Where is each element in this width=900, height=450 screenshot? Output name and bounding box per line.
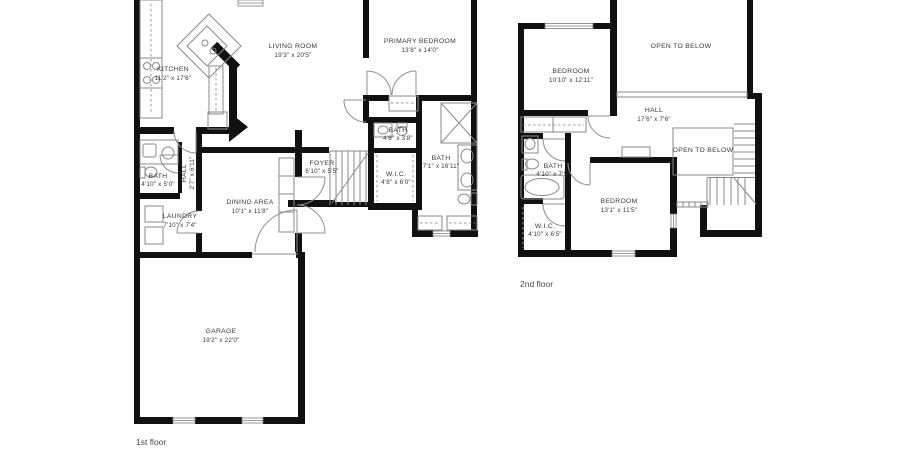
small-bath-label: BATH [389, 127, 408, 134]
garage-label: GARAGE [206, 328, 237, 335]
dining-area-dims: 10'1" x 11'8" [232, 208, 269, 215]
primary-bath-label: BATH [432, 155, 451, 162]
hall-dims: 2'7" x 6'11" [189, 157, 196, 190]
stairwell [673, 124, 756, 207]
refrigerator [208, 112, 227, 129]
hall-bath-label: BATH [149, 173, 168, 180]
wic-dims: 4'8" x 6'0" [381, 179, 411, 186]
hall2-dims: 17'6" x 7'6" [637, 116, 670, 123]
primary-bedroom-label: PRIMARY BEDROOM [384, 38, 456, 45]
hall-bath-dims: 4'10" x 5'0" [141, 181, 174, 188]
wic2-dims: 4'10" x 6'5" [528, 231, 561, 238]
second-floor-caption: 2nd floor [520, 279, 553, 289]
toilet [458, 194, 470, 204]
laundry-dims: 7'10" x 7'4" [163, 222, 196, 229]
staircase [330, 151, 368, 205]
open-to-below-stair-label: OPEN TO BELOW [673, 147, 734, 154]
sink [525, 139, 535, 150]
porch-steps [279, 158, 294, 232]
primary-bedroom-dims: 13'8" x 14'0" [401, 47, 438, 54]
bedroom2-label: BEDROOM [552, 68, 589, 75]
foyer-label: FOYER [310, 160, 335, 167]
wic-label: W.I.C. [386, 171, 406, 178]
bath2-label: BATH [544, 163, 563, 170]
floor-plan-canvas: KITCHEN 11'2" x 17'6" LIVING ROOM 19'3" … [0, 0, 900, 450]
living-room-label: LIVING ROOM [269, 43, 318, 50]
bedroom2-dims: 10'10" x 12'11" [549, 77, 593, 84]
dryer [145, 227, 163, 244]
kitchen-label: KITCHEN [157, 66, 189, 73]
bedroom3-label: BEDROOM [600, 198, 637, 205]
bath2-dims: 4'10" x 7'5" [536, 171, 569, 178]
primary-bath-dims: 7'1" x 16'11" [423, 163, 460, 170]
sink [162, 147, 174, 159]
first-floor-walls [134, 0, 478, 424]
hall-label: HALL [181, 164, 188, 182]
laundry-label: LAUNDRY [163, 213, 198, 220]
railing [617, 92, 747, 97]
wic2-label: W.I.C. [535, 223, 555, 230]
bedroom3-dims: 13'1" x 11'5" [601, 207, 638, 214]
sink [378, 126, 388, 134]
first-floor-caption: 1st floor [136, 437, 166, 447]
foyer-dims: 6'10" x 5'5" [305, 168, 338, 175]
first-floor-windows [173, 0, 450, 423]
hall2-label: HALL [645, 107, 663, 114]
dining-area-label: DINING AREA [226, 199, 273, 206]
second-floor-plan: BEDROOM 10'10" x 12'11" OPEN TO BELOW HA… [518, 0, 762, 289]
living-room-dims: 19'3" x 20'5" [274, 52, 311, 59]
first-floor-plan: KITCHEN 11'2" x 17'6" LIVING ROOM 19'3" … [134, 0, 478, 447]
washer [145, 206, 163, 222]
small-bath-dims: 4'8" x 3'8" [383, 135, 413, 142]
garage-dims: 19'2" x 22'0" [202, 337, 239, 344]
range [140, 58, 162, 88]
kitchen-dims: 11'2" x 17'6" [155, 75, 192, 82]
open-to-below-label: OPEN TO BELOW [651, 43, 712, 50]
linen-closet [622, 147, 650, 157]
